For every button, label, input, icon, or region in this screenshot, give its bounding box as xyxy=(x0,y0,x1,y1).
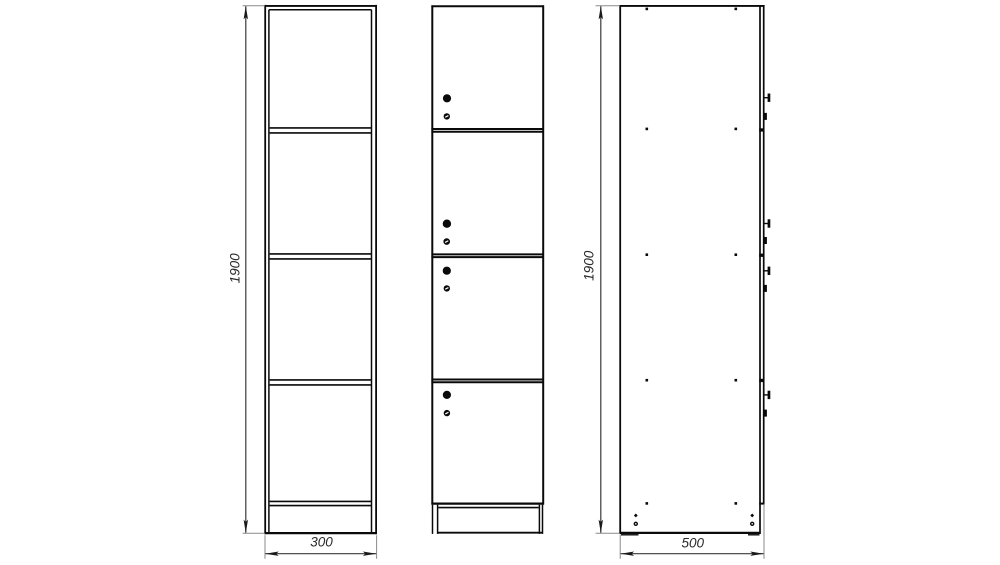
svg-text:500: 500 xyxy=(682,536,705,551)
svg-text:1900: 1900 xyxy=(582,250,597,281)
svg-text:1900: 1900 xyxy=(227,253,242,284)
svg-text:300: 300 xyxy=(310,534,333,549)
